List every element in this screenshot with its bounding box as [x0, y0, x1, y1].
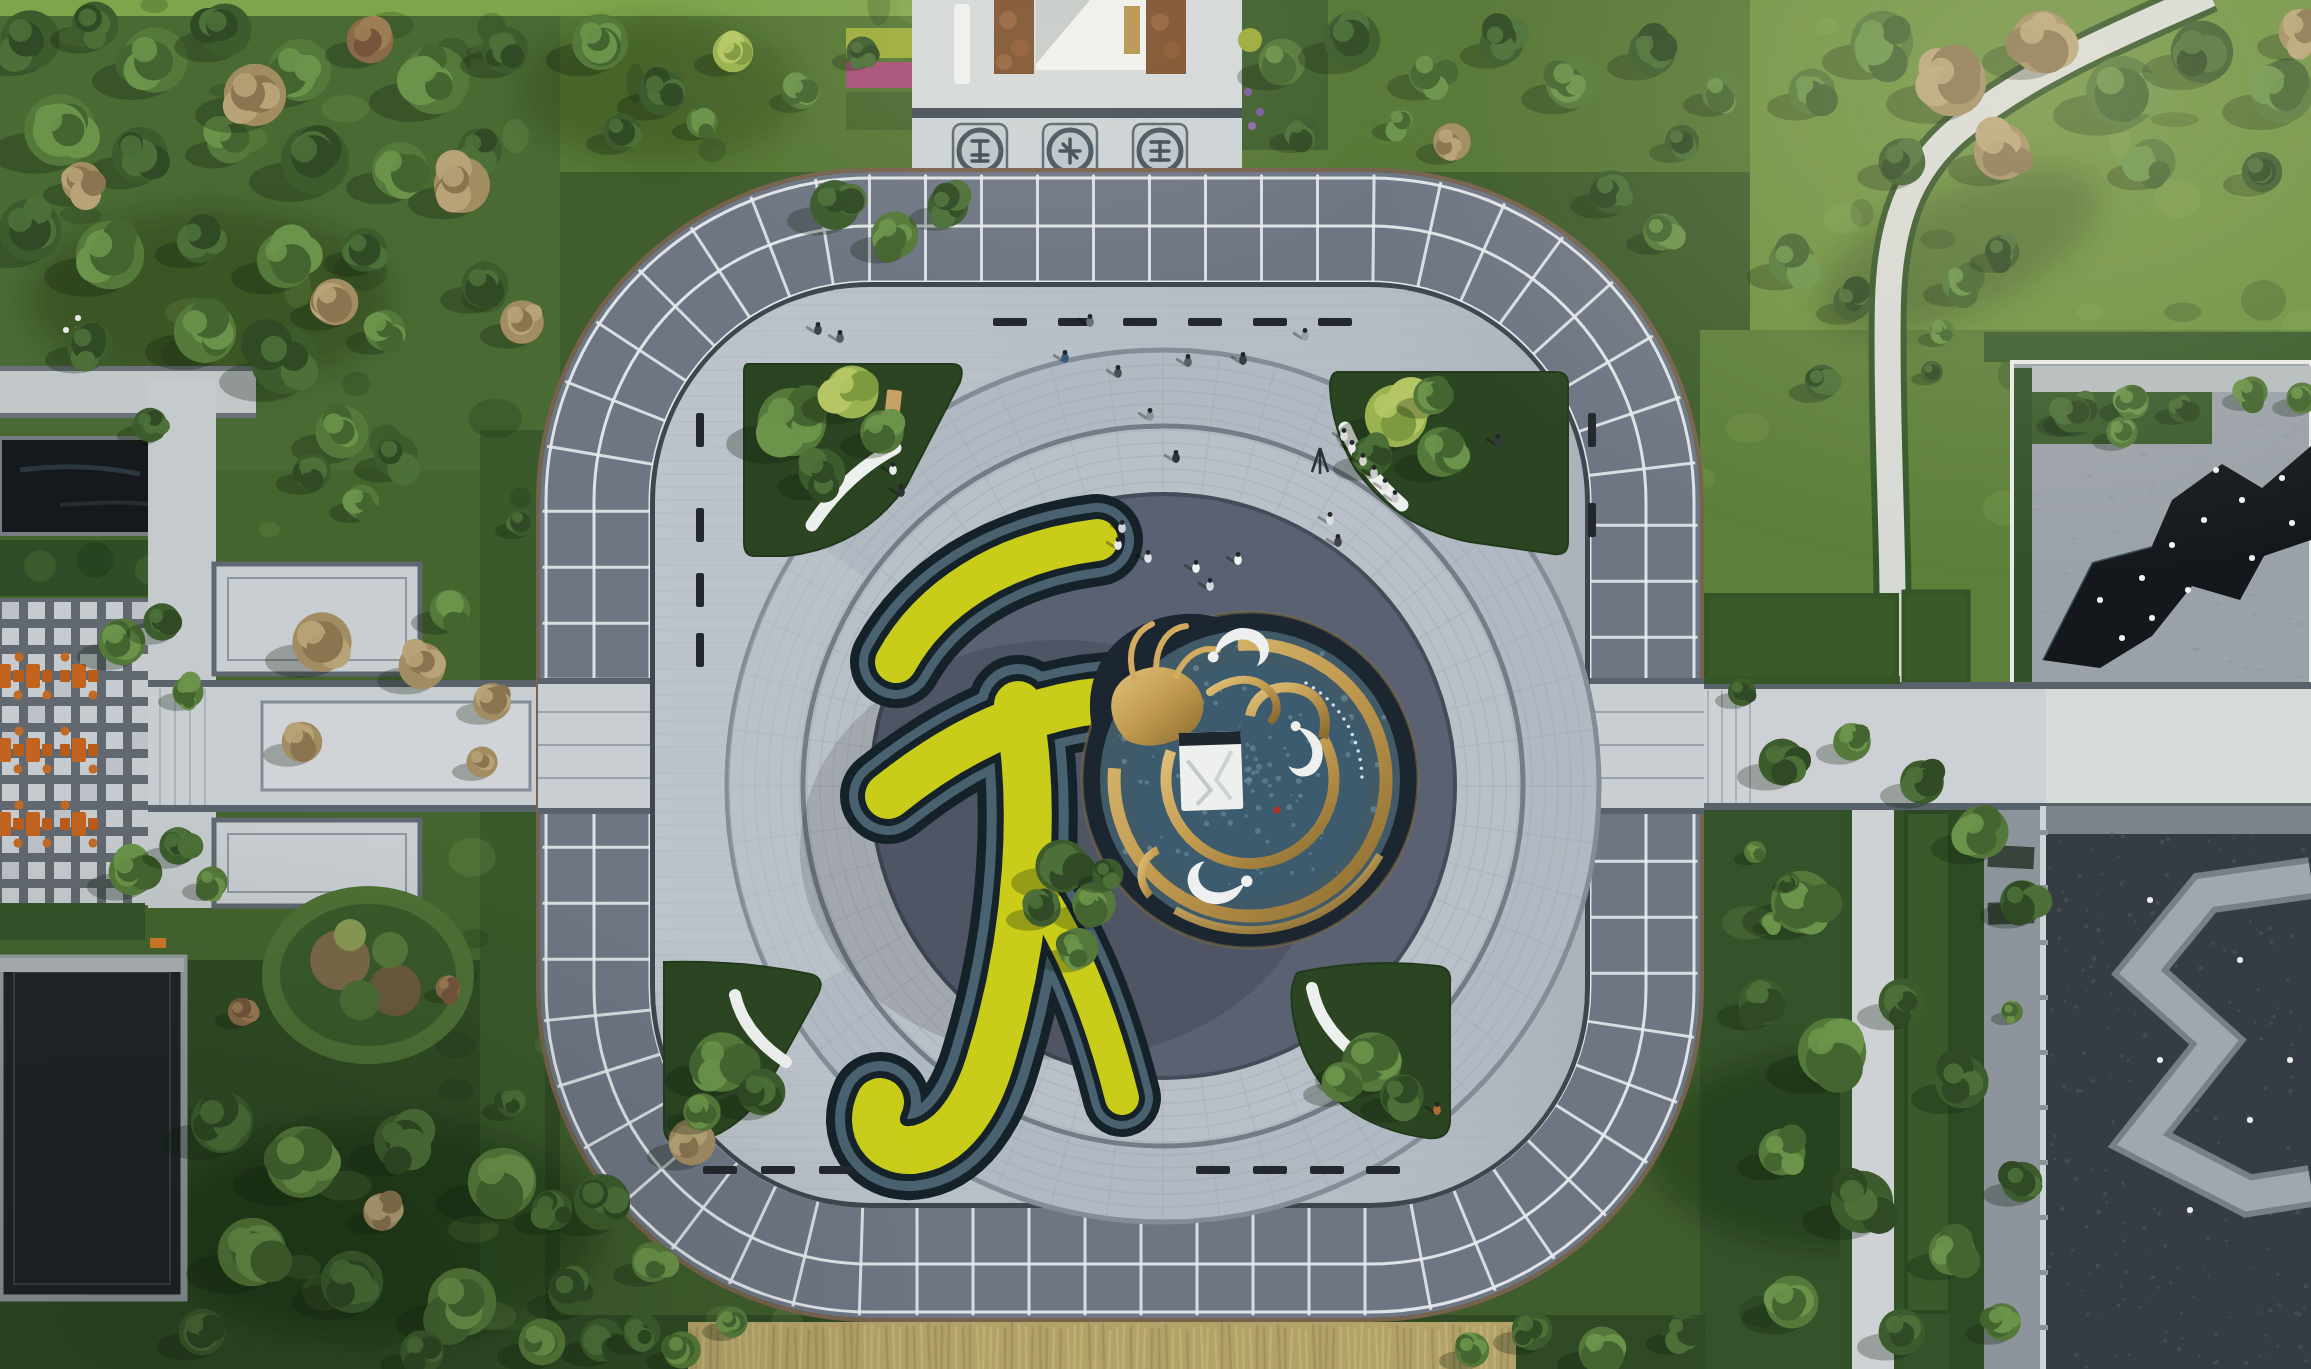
west-upper-path	[0, 366, 256, 418]
hedge-lawn-panel	[1706, 596, 1896, 682]
south-path	[1852, 810, 1894, 1369]
west-ring-crossing	[538, 678, 658, 814]
sunken-pebble-courtyard	[2046, 806, 2311, 1369]
aerial-photo-landscape-plaza	[0, 0, 2311, 1369]
hedge-lawn-panel	[1904, 592, 1968, 682]
scene-canvas	[0, 0, 2311, 1369]
square-water-mirror	[1179, 731, 1244, 811]
dragon-ring	[1082, 612, 1418, 948]
